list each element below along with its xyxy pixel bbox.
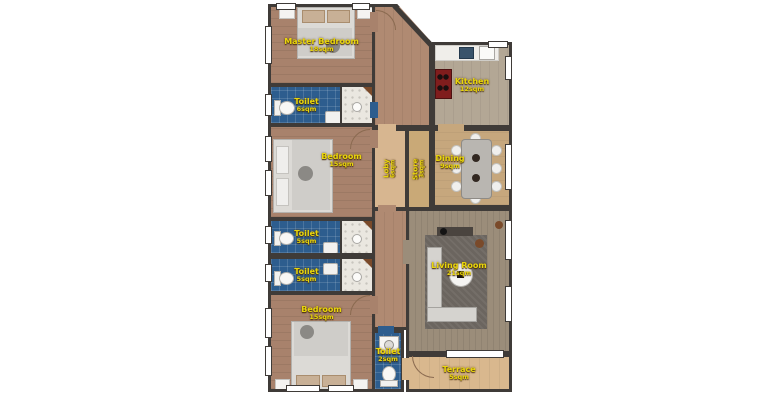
shower-drain bbox=[352, 102, 362, 112]
plant bbox=[475, 239, 484, 248]
room-area: 6sqm bbox=[391, 160, 398, 178]
speaker bbox=[440, 228, 447, 235]
washing-machine bbox=[379, 336, 399, 354]
window bbox=[265, 226, 272, 244]
shower-area bbox=[340, 221, 372, 253]
sink bbox=[323, 263, 338, 275]
window bbox=[265, 308, 272, 338]
room-toilet-master: Toilet 6sqm bbox=[268, 84, 375, 126]
room-name: Bedroom bbox=[301, 305, 342, 314]
window bbox=[505, 144, 512, 190]
door-opening bbox=[378, 326, 394, 334]
door-opening bbox=[370, 130, 378, 148]
shower-drain bbox=[352, 272, 362, 282]
chair bbox=[491, 181, 502, 192]
chair bbox=[491, 163, 502, 174]
toilet-bowl bbox=[279, 232, 294, 245]
door-opening bbox=[438, 124, 464, 132]
table-item bbox=[457, 271, 464, 278]
bed-furniture bbox=[273, 139, 333, 213]
room-name: Terrace bbox=[442, 365, 475, 374]
room-name: Toilet bbox=[294, 267, 319, 276]
sofa bbox=[427, 247, 442, 311]
room-name: Store bbox=[412, 158, 420, 179]
chair bbox=[491, 145, 502, 156]
room-toilet-small: Toilet 2sqm bbox=[372, 330, 404, 392]
room-area: 3sqm bbox=[420, 160, 427, 178]
window bbox=[265, 170, 272, 196]
window bbox=[265, 264, 272, 282]
blanket-roll bbox=[300, 325, 314, 339]
shower-shelf bbox=[363, 259, 372, 268]
room-name: Loby bbox=[383, 160, 391, 179]
blanket-roll bbox=[298, 166, 313, 181]
window bbox=[352, 3, 370, 10]
window bbox=[265, 136, 272, 162]
shower-area bbox=[340, 259, 372, 291]
pillow bbox=[302, 10, 325, 23]
door-opening bbox=[402, 358, 410, 380]
window bbox=[286, 385, 320, 392]
room-name: Toilet bbox=[294, 97, 319, 106]
shower-shelf bbox=[363, 221, 372, 230]
blanket-roll bbox=[326, 39, 340, 53]
room-toilet-a: Toilet 5sqm bbox=[268, 218, 375, 256]
room-area: 5sqm bbox=[297, 276, 317, 283]
dining-table bbox=[461, 139, 492, 199]
floor-plan: Master Bedroom 18sqm Toilet 6sqm Kitchen… bbox=[250, 2, 516, 398]
nightstand bbox=[353, 379, 368, 391]
shower-shelf bbox=[363, 87, 372, 96]
door-opening bbox=[378, 205, 396, 212]
shower-drain bbox=[352, 234, 362, 244]
room-area: 5sqm bbox=[449, 374, 469, 381]
room-area: 2sqm bbox=[378, 356, 398, 363]
room-toilet-b: Toilet 5sqm bbox=[268, 256, 375, 294]
stove bbox=[435, 69, 452, 99]
window bbox=[265, 346, 272, 376]
bed-furniture bbox=[291, 321, 351, 391]
window bbox=[328, 385, 354, 392]
door-opening bbox=[370, 102, 378, 118]
window bbox=[488, 41, 508, 48]
room-master-bedroom: Master Bedroom 18sqm bbox=[268, 4, 375, 86]
shower-area bbox=[340, 87, 372, 123]
window bbox=[446, 350, 504, 358]
plate bbox=[472, 174, 480, 182]
room-living: Living Room 21sqm bbox=[406, 208, 512, 354]
toilet-tank bbox=[380, 380, 398, 387]
washing-machine-door bbox=[384, 340, 394, 350]
window bbox=[505, 286, 512, 322]
window bbox=[505, 56, 512, 80]
room-area: 6sqm bbox=[297, 106, 317, 113]
room-store: Store 3sqm bbox=[406, 128, 432, 210]
door-opening bbox=[378, 124, 396, 132]
plate bbox=[472, 154, 480, 162]
toilet-bowl bbox=[279, 272, 294, 285]
sink bbox=[323, 242, 338, 254]
sofa bbox=[427, 307, 477, 322]
kitchen-sink bbox=[459, 47, 474, 59]
room-label: Store 3sqm bbox=[409, 131, 429, 207]
window bbox=[276, 3, 296, 10]
window bbox=[265, 26, 272, 64]
fridge bbox=[479, 46, 495, 60]
coffee-table bbox=[449, 263, 473, 287]
room-label: Loby 6sqm bbox=[375, 131, 405, 207]
window bbox=[505, 220, 512, 260]
blanket bbox=[298, 28, 352, 56]
room-name: Toilet bbox=[294, 229, 319, 238]
plant bbox=[495, 221, 503, 229]
toilet-bowl bbox=[279, 101, 295, 115]
door-opening bbox=[403, 240, 411, 264]
room-area: 5sqm bbox=[297, 238, 317, 245]
door-opening bbox=[370, 296, 378, 314]
room-name: Kitchen bbox=[455, 77, 489, 86]
pillow bbox=[327, 10, 350, 23]
bed-furniture bbox=[297, 7, 355, 59]
room-kitchen: Kitchen 12sqm bbox=[432, 42, 512, 128]
window bbox=[265, 94, 272, 116]
floor-plan-canvas: Master Bedroom 18sqm Toilet 6sqm Kitchen… bbox=[0, 0, 760, 407]
pillow bbox=[276, 178, 289, 206]
pillow bbox=[276, 146, 289, 174]
room-dining: Dining 9sqm bbox=[432, 128, 512, 208]
room-area: 12sqm bbox=[460, 86, 484, 93]
